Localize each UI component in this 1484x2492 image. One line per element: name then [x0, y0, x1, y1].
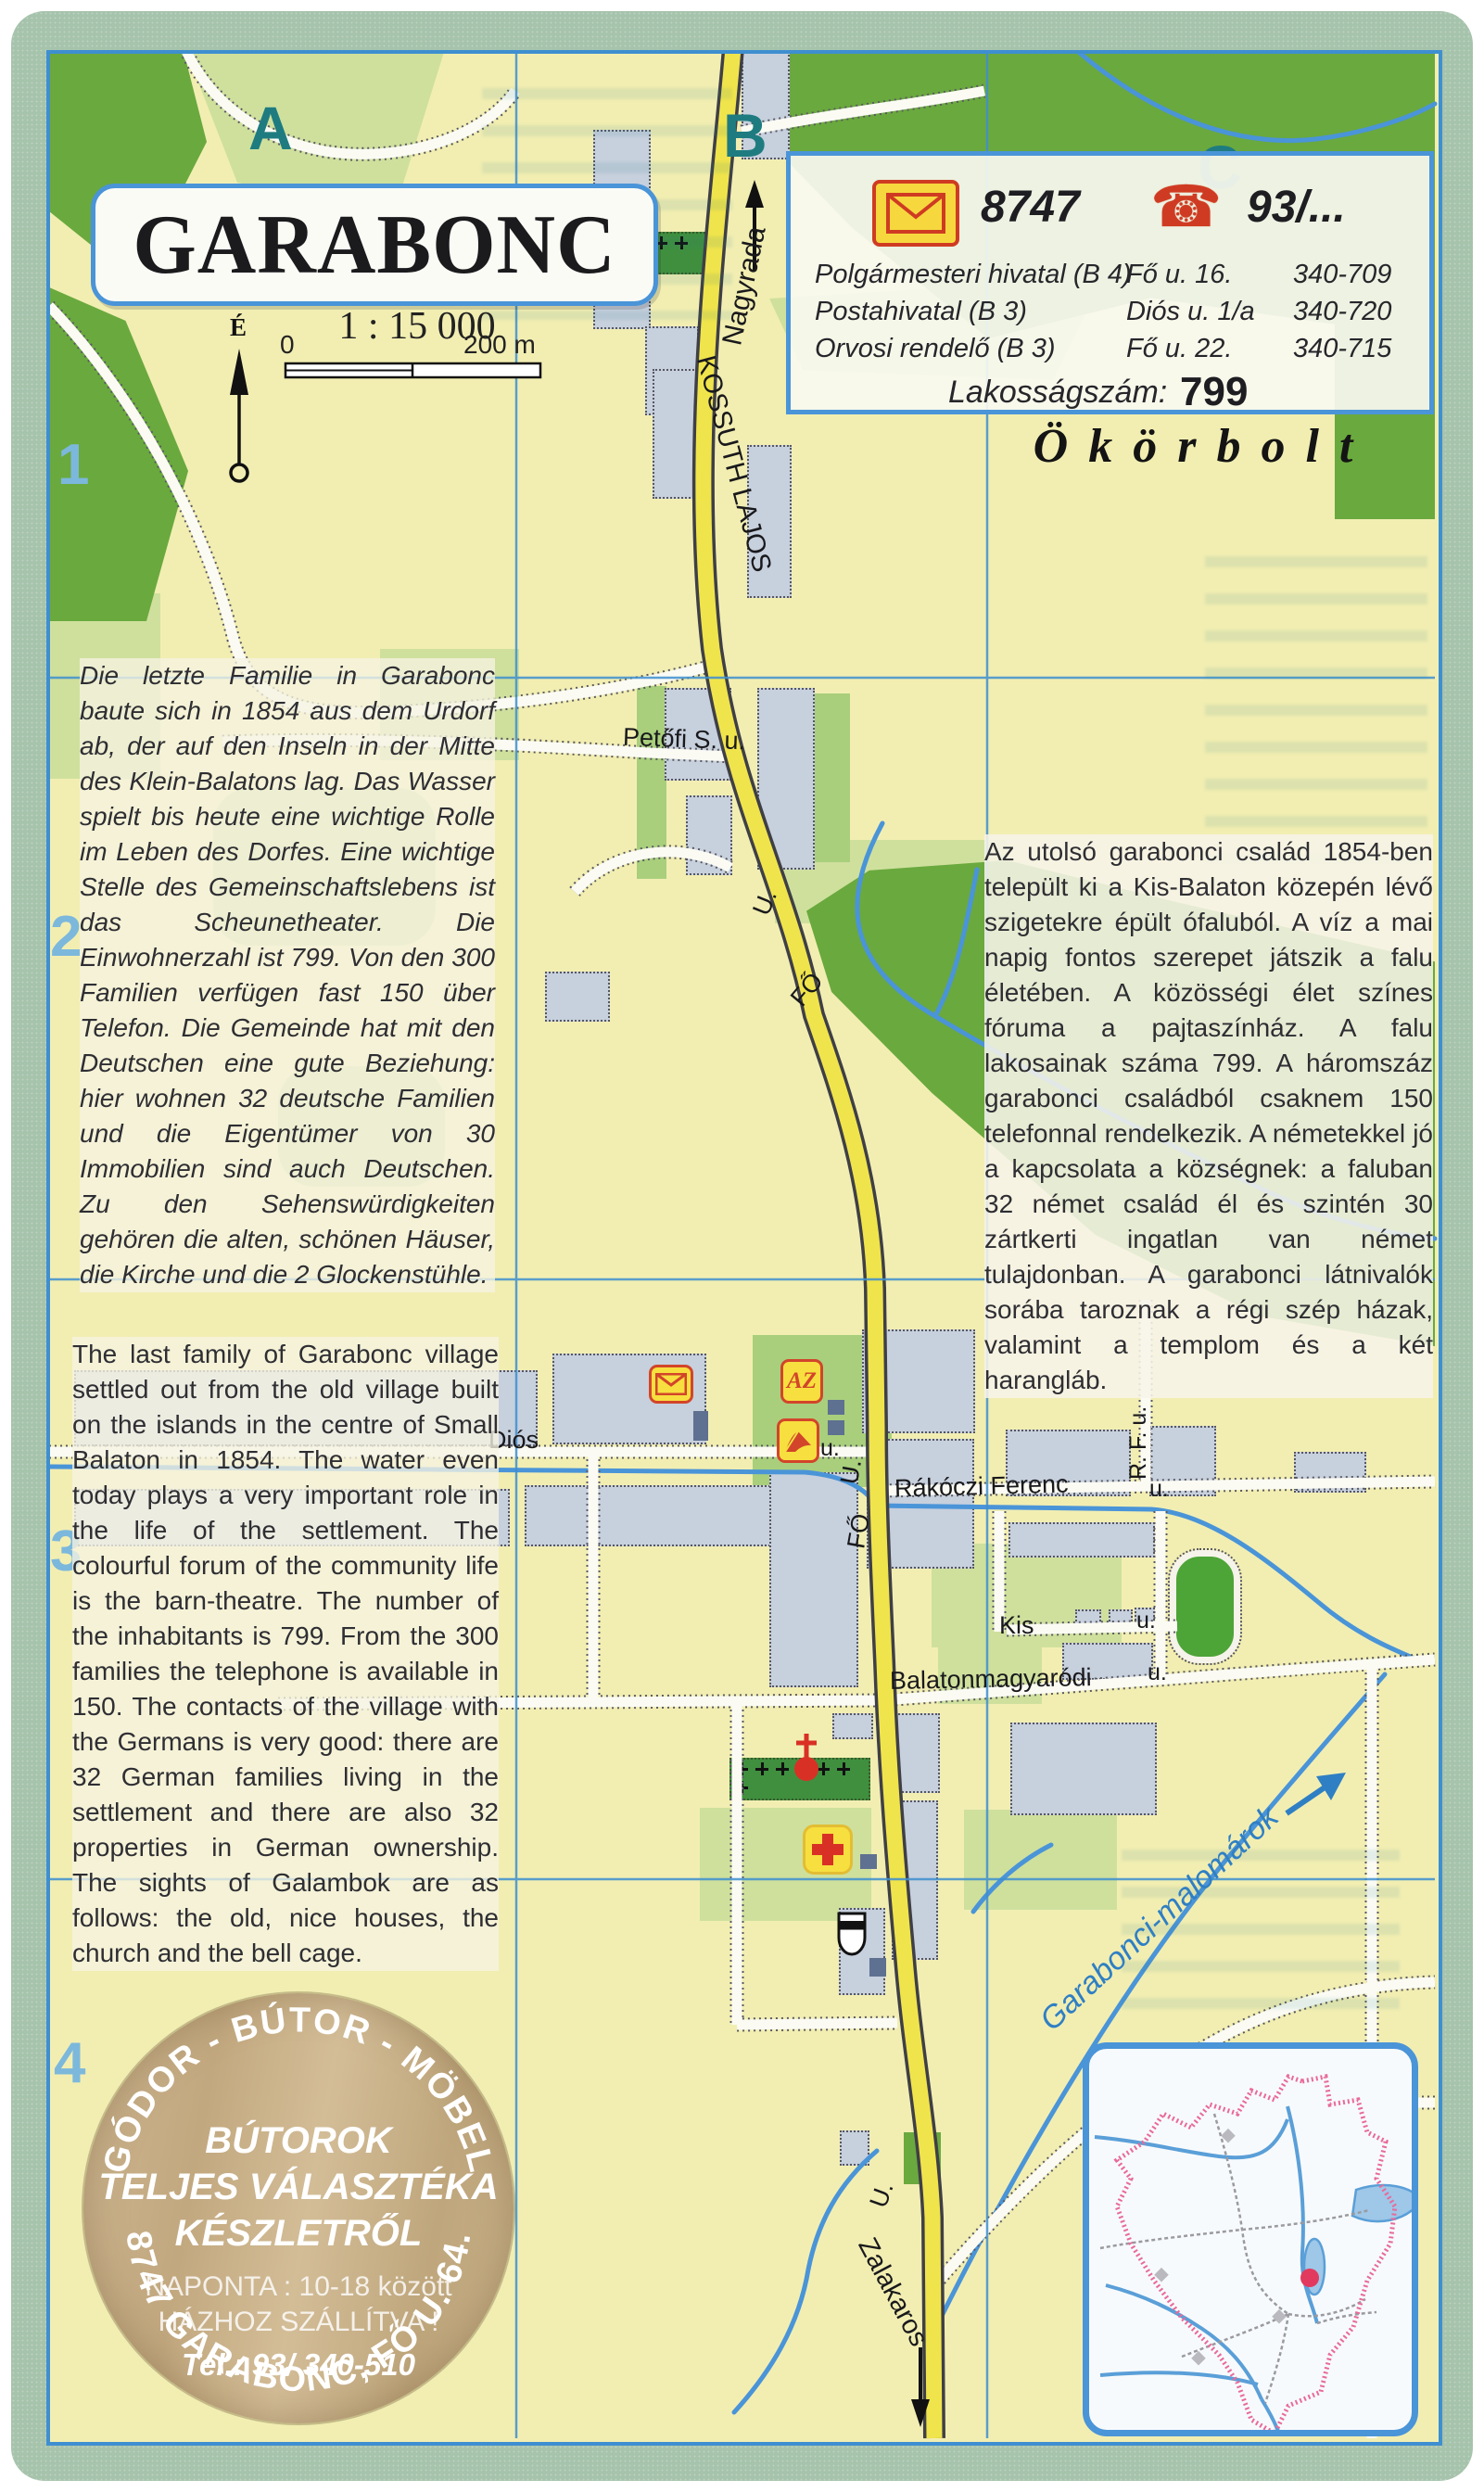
scale-start-label: 0 — [280, 330, 295, 360]
info-row-phone: 340-709 — [1293, 260, 1391, 290]
street-label-petofi: Petőfi S. u. — [622, 723, 745, 756]
map-sheet: AZ Nagyrada KOSSUTH LAJOS Petőfi S. u. — [0, 0, 1484, 2492]
info-row-address: Diós u. 1/a — [1126, 297, 1255, 327]
article-german: Die letzte Familie in Garabonc baute sic… — [80, 658, 495, 1292]
grid-row-1: 1 — [57, 432, 89, 498]
street-label-balatonmagyarodi-u: u. — [1148, 1659, 1167, 1686]
bell-cage-icon — [836, 1912, 869, 1960]
open-book-icon — [777, 1418, 819, 1463]
north-letter: É — [230, 313, 247, 342]
grid-column-a: A — [248, 93, 293, 163]
ad-telephone: Tel.: 93/ 340-510 — [182, 2347, 416, 2382]
map-canvas: AZ Nagyrada KOSSUTH LAJOS Petőfi S. u. — [46, 50, 1442, 2446]
shop-az-letters: AZ — [787, 1368, 817, 1394]
map-viewport: AZ Nagyrada KOSSUTH LAJOS Petőfi S. u. — [46, 50, 1442, 2446]
street-label-rakoczi: Rákóczi Ferenc — [894, 1470, 1069, 1504]
info-row-name: Postahivatal (B 3) — [815, 297, 1027, 327]
locator-inset-map — [1083, 2042, 1418, 2436]
phone-code: 93/... — [1247, 182, 1346, 233]
inset-rivers — [1095, 2106, 1317, 2436]
north-emblem — [230, 349, 248, 481]
scale-end-label: 200 m — [463, 330, 536, 360]
street-label-fo2: FŐ — [842, 1511, 876, 1550]
street-label-rakoczi-u: u. — [1149, 1476, 1169, 1503]
ad-line2: TELJES VÁLASZTÉKA — [98, 2166, 498, 2207]
advertisement-stamp: GÓDOR - BÚTOR - MÖBEL 8747 GARABONC, FŐ … — [83, 1993, 514, 2423]
street-label-fo-u2: U. — [835, 1457, 868, 1487]
info-row-phone: 340-720 — [1293, 297, 1391, 327]
page-title: GARABONC — [133, 196, 615, 293]
shop-note-okorbolt: Ökörbolt — [981, 419, 1426, 474]
ad-line3: KÉSZLETRŐL — [175, 2211, 423, 2254]
title-box: GARABONC — [91, 184, 658, 306]
shop-az-icon: AZ — [780, 1359, 823, 1404]
inset-town-markers — [1154, 2129, 1287, 2366]
ad-line4: NAPONTA : 10-18 között — [145, 2271, 452, 2302]
info-box: 8747 ☎ 93/... Polgármesteri hivatal (B 4… — [786, 151, 1434, 414]
telephone-icon: ☎ — [1150, 172, 1222, 240]
scale-bar — [285, 363, 540, 377]
postal-envelope-icon — [872, 180, 959, 247]
article-english: The last family of Garabonc village sett… — [72, 1337, 499, 1971]
population-label: Lakosságszám: — [948, 375, 1167, 411]
street-label-balatonmagyarodi: Balatonmagyaródi — [890, 1663, 1092, 1696]
info-row-address: Fő u. 22. — [1126, 334, 1232, 364]
street-label-kis: Kis — [999, 1611, 1034, 1640]
street-label-kis-u: u. — [1136, 1608, 1156, 1634]
inset-county-boundary — [1117, 2077, 1395, 2434]
inset-lake — [1352, 2185, 1418, 2221]
post-office-envelope-icon — [649, 1365, 693, 1404]
info-row-address: Fő u. 16. — [1126, 260, 1232, 290]
postal-code: 8747 — [981, 182, 1080, 233]
article-hungarian: Az utolsó garabonci család 1854-ben tele… — [984, 834, 1433, 1398]
info-row-phone: 340-715 — [1293, 334, 1391, 364]
grid-row-4: 4 — [54, 2030, 85, 2096]
ad-line5: HÁZHOZ SZÁLLÍTVA ! — [159, 2307, 439, 2337]
ad-line1: BÚTOROK — [205, 2118, 395, 2161]
street-label-rf-u: R. F. u. — [1125, 1406, 1152, 1480]
info-row-name: Orvosi rendelő (B 3) — [815, 334, 1056, 364]
population-value: 799 — [1180, 369, 1248, 415]
info-row-name: Polgármesteri hivatal (B 4) — [815, 260, 1132, 290]
church-icon — [786, 1732, 827, 1787]
red-cross-icon — [803, 1824, 853, 1875]
grid-column-b: B — [723, 100, 767, 171]
inset-garabonc-dot — [1300, 2269, 1319, 2287]
street-label-dios-u: u. — [820, 1435, 840, 1462]
grid-row-2: 2 — [50, 904, 82, 970]
